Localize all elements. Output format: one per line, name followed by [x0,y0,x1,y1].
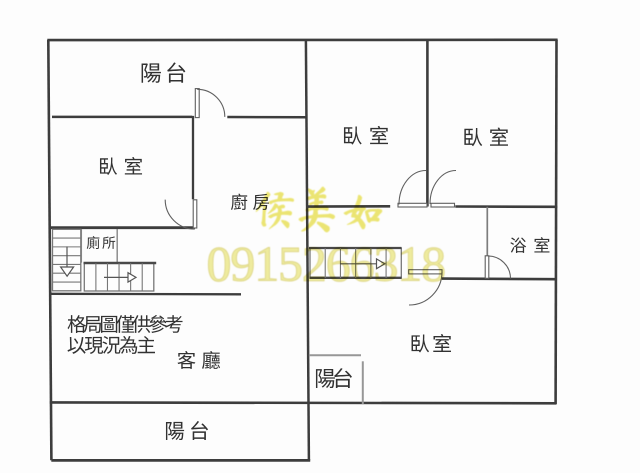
svg-text:0915266318: 0915266318 [207,236,446,292]
